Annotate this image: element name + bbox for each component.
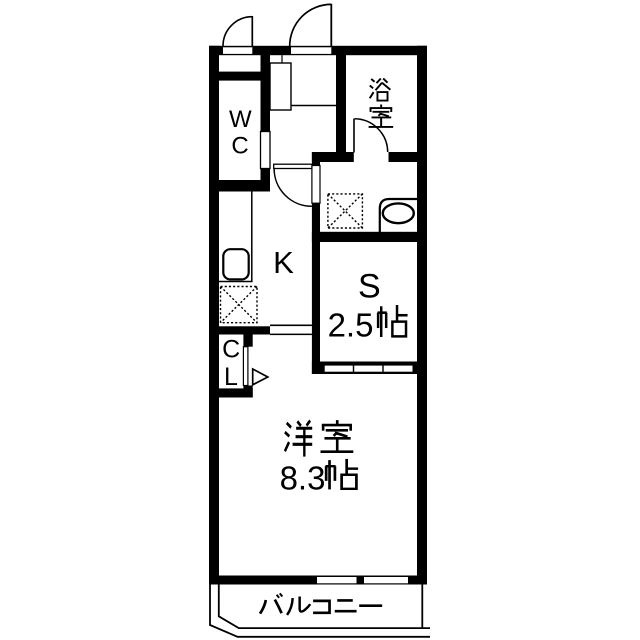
svg-text:L: L <box>224 363 238 391</box>
svg-text:S: S <box>358 267 381 305</box>
svg-text:C: C <box>222 336 240 364</box>
svg-text:8.3: 8.3 <box>280 459 326 496</box>
svg-text:C: C <box>231 132 248 159</box>
svg-text:K: K <box>273 245 294 280</box>
svg-text:W: W <box>229 106 252 133</box>
svg-text:2.5: 2.5 <box>328 307 374 344</box>
